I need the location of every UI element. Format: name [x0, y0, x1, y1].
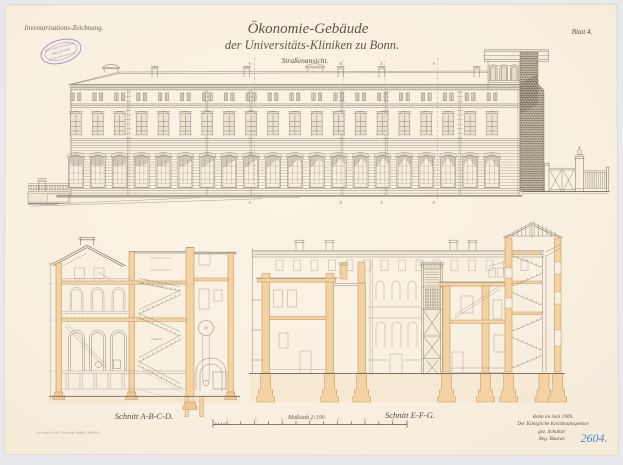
svg-text:gez. Schultze: gez. Schultze	[538, 429, 565, 435]
svg-text:F.: F.	[432, 201, 436, 205]
svg-text:2604.: 2604.	[581, 431, 608, 445]
svg-text:Schnitt A-B-C-D.: Schnitt A-B-C-D.	[115, 411, 173, 421]
svg-text:B.: B.	[339, 62, 342, 66]
svg-text:15: 15	[281, 418, 285, 422]
svg-text:35: 35	[392, 418, 396, 422]
svg-text:E.: E.	[379, 62, 383, 66]
svg-text:Erdgesch.: Erdgesch.	[150, 338, 162, 341]
svg-text:Straßenansicht.: Straßenansicht.	[282, 56, 329, 65]
svg-text:25: 25	[337, 418, 341, 422]
svg-text:Der Königliche Kreisbauinspekt: Der Königliche Kreisbauinspektor	[516, 421, 590, 427]
svg-text:A.: A.	[247, 62, 251, 66]
svg-text:der Universitäts-Kliniken zu B: der Universitäts-Kliniken zu Bonn.	[225, 38, 399, 52]
svg-text:Reg. Baurat.: Reg. Baurat.	[538, 436, 565, 442]
svg-text:30: 30	[364, 418, 368, 422]
svg-text:B.: B.	[339, 201, 342, 205]
svg-text:F.: F.	[432, 62, 436, 66]
svg-text:20: 20	[309, 418, 313, 422]
svg-text:Inventarisations-Zeichnung.: Inventarisations-Zeichnung.	[23, 24, 103, 32]
svg-text:Ökonomie-Gebäude: Ökonomie-Gebäude	[248, 20, 369, 37]
svg-text:Bonn im Juni 1909.: Bonn im Juni 1909.	[533, 414, 574, 420]
svg-text:Maßstab 1:100.: Maßstab 1:100.	[287, 414, 326, 421]
svg-text:10: 10	[254, 418, 258, 422]
svg-text:A.: A.	[247, 201, 251, 205]
svg-text:1.Stock: 1.Stock	[156, 285, 165, 288]
svg-text:Blatt 4.: Blatt 4.	[572, 28, 593, 36]
svg-text:E.: E.	[379, 201, 383, 205]
